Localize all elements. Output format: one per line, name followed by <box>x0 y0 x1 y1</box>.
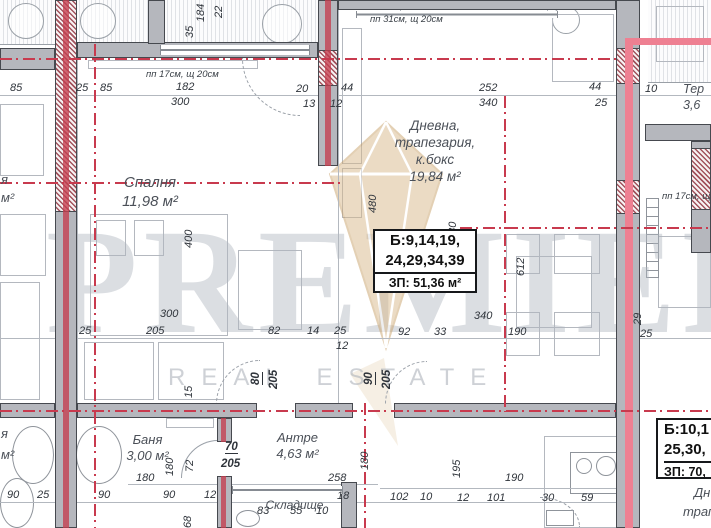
round-table-icon <box>8 3 44 39</box>
axis-line <box>0 58 616 60</box>
dimension-label: 300 <box>171 96 189 108</box>
room-area: 3,6 <box>683 98 711 114</box>
room-area: 3,00 м² <box>100 448 195 464</box>
furniture-neighbor <box>0 282 40 400</box>
apartment-numbers: Б:9,14,19, <box>375 231 475 251</box>
round-table-icon <box>80 3 116 39</box>
dimension-label: 340 <box>474 310 492 322</box>
room-name: Дневна, <box>377 118 493 135</box>
partial-room-label: я <box>1 428 8 440</box>
dimension-label: 252 <box>479 82 497 94</box>
dimension-label: 70 <box>225 441 238 454</box>
apartment-numbers: Б:10,1 <box>664 420 711 440</box>
bath-shelf <box>166 418 214 428</box>
sink-basin <box>12 426 54 484</box>
dimension-label: 25 <box>76 82 88 94</box>
construction-note: пп 31см, щ 20см <box>370 14 443 26</box>
furniture-neighbor <box>0 214 46 276</box>
dimension-label: 25 <box>334 325 346 337</box>
dimension-label: 25 <box>640 328 652 340</box>
dimension-label: 612 <box>515 258 527 276</box>
dimension-label: 15 <box>183 386 195 398</box>
wall <box>148 0 165 44</box>
room-label-bath: Баня 3,00 м² <box>100 432 195 465</box>
dimension-label: 18 <box>337 490 349 502</box>
room-name: Антре <box>250 430 345 446</box>
dimension-line <box>338 95 711 96</box>
dimension-label: 205 <box>221 458 240 470</box>
axis-line <box>0 410 711 412</box>
wall-axis-stripe <box>221 418 226 442</box>
dimension-label: 10 <box>420 491 432 503</box>
room-label-storage: Складище <box>252 498 337 513</box>
dimension-label: 400 <box>183 230 195 248</box>
dimension-label: 25 <box>595 97 607 109</box>
fixture <box>0 478 34 528</box>
wall-axis-stripe <box>63 0 69 528</box>
dimension-line <box>0 338 711 339</box>
sink-bowl-icon <box>596 456 616 476</box>
dimension-label: 92 <box>398 326 410 338</box>
dimension-label: 258 <box>328 472 346 484</box>
dimension-label: 90 <box>163 489 175 501</box>
room-name: Складище <box>252 498 337 513</box>
construction-note: пп 17см, щ 20см <box>146 69 219 81</box>
dimension-label: 22 <box>213 6 225 18</box>
dimension-line <box>380 488 636 489</box>
apartment-numbers: 25,30, <box>664 440 711 460</box>
dimension-label: 85 <box>100 82 112 94</box>
partial-room-label: м² <box>1 192 14 204</box>
room-edge-line <box>77 58 78 403</box>
room-area: 11,98 м² <box>95 193 205 212</box>
dimension-line <box>0 95 318 96</box>
dimension-label: 82 <box>268 325 280 337</box>
dimension-label: 25 <box>79 325 91 337</box>
apartment-numbers: 24,29,34,39 <box>375 251 475 271</box>
room-name: Спалня <box>95 174 205 193</box>
dimension-label: 29 <box>632 313 644 325</box>
door-swing-arc <box>242 58 300 116</box>
partial-room-label: Дн <box>694 487 710 499</box>
dimension-label: 102 <box>390 491 408 503</box>
dimension-label: 25 <box>37 489 49 501</box>
dimension-label: 205 <box>146 325 164 337</box>
dimension-label: 300 <box>160 308 178 320</box>
dimension-label: 44 <box>589 81 601 93</box>
dimension-label: 190 <box>508 326 526 338</box>
axis-line <box>504 96 506 412</box>
apartment-info-box-neighbor: Б:10,1 25,30, ЗП: 70, <box>656 418 711 479</box>
room-name: Баня <box>100 432 195 448</box>
dimension-label: 205 <box>268 370 280 389</box>
dimension-label: 14 <box>307 325 319 337</box>
window <box>160 45 310 55</box>
window-sill-line <box>88 60 258 69</box>
apartment-area: ЗП: 51,36 м² <box>375 274 475 292</box>
room-area: 19,84 м² <box>377 169 493 186</box>
room-label-hall: Антре 4,63 м² <box>250 430 345 463</box>
apartment-area: ЗП: 70, <box>664 463 711 481</box>
furniture-neighbor <box>656 6 704 62</box>
partial-room-label: трап <box>683 506 711 518</box>
round-table-icon <box>262 4 302 44</box>
room-name: трапезария, <box>377 135 493 152</box>
dimension-label: 44 <box>341 82 353 94</box>
apartment-info-box: Б:9,14,19, 24,29,34,39 ЗП: 51,36 м² <box>373 229 477 293</box>
dimension-label: 195 <box>451 460 463 478</box>
partial-room-label: м² <box>1 449 14 461</box>
dimension-label: 20 <box>296 83 308 95</box>
dimension-label: 101 <box>487 492 505 504</box>
window <box>232 486 343 494</box>
construction-note: пп 17см, щ <box>662 191 710 203</box>
dimension-label: 90 <box>98 489 110 501</box>
room-label-living: Дневна, трапезария, к.бокс 19,84 м² <box>377 118 493 186</box>
room-label-terrace: Тер 3,6 <box>683 82 711 113</box>
dimension-label: 340 <box>479 97 497 109</box>
wall-axis-stripe <box>325 0 331 166</box>
dimension-label: 12 <box>204 489 216 501</box>
dimension-label: 12 <box>330 98 342 110</box>
dimension-label: 205 <box>381 370 393 389</box>
dimension-label: 182 <box>176 81 194 93</box>
dimension-label: 180 <box>359 452 371 470</box>
room-name: к.бокс <box>377 152 493 169</box>
dimension-label: 30 <box>542 492 554 504</box>
dimension-label: 10 <box>645 83 657 95</box>
wall <box>645 124 711 141</box>
wall <box>338 0 616 10</box>
wall-axis-stripe-pink <box>633 38 711 45</box>
dimension-label: 35 <box>184 26 196 38</box>
dimension-label: 180 <box>136 472 154 484</box>
dimension-label: 184 <box>195 4 207 22</box>
dimension-label: 68 <box>182 516 194 528</box>
dimension-label: 12 <box>336 340 348 352</box>
dimension-label: 190 <box>505 472 523 484</box>
dimension-label: 12 <box>457 492 469 504</box>
dimension-label: 59 <box>581 492 593 504</box>
wall <box>341 482 357 528</box>
dimension-label: 13 <box>303 98 315 110</box>
wall-axis-stripe <box>221 476 226 528</box>
kitchen-counter <box>552 14 614 82</box>
dimension-label: 90 <box>363 372 376 385</box>
dimension-label: 33 <box>434 326 446 338</box>
sink-bowl-icon <box>576 458 592 474</box>
room-label-bedroom: Спалня 11,98 м² <box>95 174 205 212</box>
axis-line <box>460 227 711 229</box>
furniture-neighbor <box>0 104 44 176</box>
axis-line <box>94 44 96 528</box>
partial-room-label: я <box>1 174 8 186</box>
floor-plan-canvas: PREMIER REAL ESTATE <box>0 0 711 528</box>
room-name: Тер <box>683 82 711 98</box>
dimension-label: 85 <box>10 82 22 94</box>
dimension-label: 80 <box>250 372 263 385</box>
wall-axis-stripe-pink <box>625 38 633 528</box>
dimension-label: 90 <box>7 489 19 501</box>
dimension-label: 480 <box>367 195 379 213</box>
room-area: 4,63 м² <box>250 446 345 462</box>
